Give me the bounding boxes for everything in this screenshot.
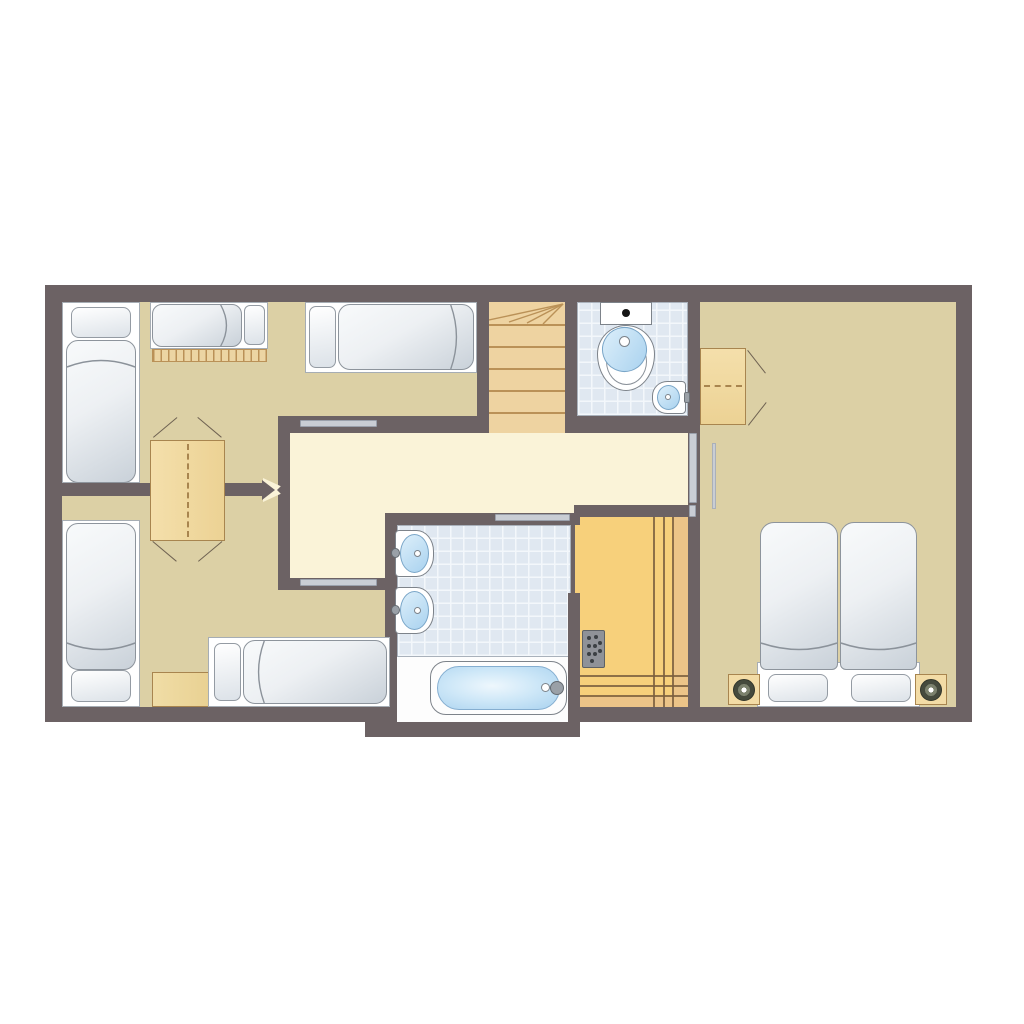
double-bed-mattress-right <box>840 522 917 670</box>
toilet-button <box>622 309 630 317</box>
bed-mattress <box>66 523 136 670</box>
bathtub-faucet <box>550 681 564 695</box>
sauna-bench-line <box>663 517 665 707</box>
wall-outer-top <box>45 285 972 302</box>
wardrobe-divider-line <box>187 444 189 537</box>
wall-bathroom-bump <box>365 722 580 737</box>
staircase <box>489 302 565 433</box>
bunk-bed-ladder <box>152 349 267 362</box>
sauna-bench-line <box>575 695 688 697</box>
wall-stairs-right <box>565 285 577 433</box>
bedside-lamp <box>920 679 942 701</box>
nightstand <box>152 672 209 707</box>
wardrobe-shared <box>150 440 225 541</box>
nightstand-left <box>728 674 760 705</box>
bunk-bed-mattress <box>152 304 242 347</box>
door-bedroom-top-left <box>300 420 377 427</box>
nightstand-right <box>915 674 947 705</box>
heater-stone <box>587 636 591 640</box>
bathroom-sink-drain <box>414 550 421 557</box>
toilet-flush-dot <box>619 336 630 347</box>
heater-stone <box>598 641 602 645</box>
sauna-bench-right <box>672 517 688 707</box>
door-bedroom-right <box>689 433 697 503</box>
wall-outer-right <box>956 285 972 722</box>
wall-bathroom-sauna <box>568 593 580 722</box>
bathroom-sink-faucet <box>391 605 400 615</box>
corner-sink-faucet <box>684 392 690 403</box>
heater-stone <box>598 649 602 653</box>
double-bed-mattress-left <box>760 522 838 670</box>
wall-outer-bottom-left <box>45 707 385 722</box>
wall-wc-bottom <box>565 416 700 433</box>
bunk-bed-pillow <box>244 305 265 345</box>
wardrobe-divider-line <box>704 385 742 387</box>
wall-outer-left <box>45 285 62 722</box>
wardrobe-right-bedroom <box>700 348 746 425</box>
sauna-bench-line <box>575 685 688 687</box>
heater-stone <box>587 652 591 656</box>
door-sauna <box>689 505 696 517</box>
bed-mattress <box>243 640 387 704</box>
heater-stone <box>593 644 597 648</box>
bed-pillow <box>71 307 131 338</box>
sauna-bench-line <box>575 675 688 677</box>
bed-pillow <box>851 674 911 702</box>
wall-sauna-top <box>574 505 700 517</box>
sauna-bench-line <box>672 517 674 707</box>
floor-plan <box>0 0 1024 1024</box>
bed-mattress <box>338 304 474 370</box>
bathroom-sink-faucet <box>391 548 400 558</box>
bedside-lamp <box>733 679 755 701</box>
bed-mattress <box>66 340 136 483</box>
bed-pillow <box>71 670 131 702</box>
heater-stone <box>587 644 591 648</box>
bathtub-drain <box>541 683 550 692</box>
bathroom-sink-drain <box>414 607 421 614</box>
bed-pillow <box>768 674 828 702</box>
door-bedroom-bottom-left <box>300 579 377 586</box>
corner-sink-drain <box>665 394 671 400</box>
wall-hallway-left <box>278 416 290 590</box>
bed-pillow <box>309 306 336 368</box>
door-bathroom <box>495 514 570 521</box>
heater-stone <box>594 635 598 639</box>
heater-stone <box>590 659 594 663</box>
partition-bathroom-sauna-glass <box>571 517 575 593</box>
sauna-heater <box>582 630 605 668</box>
wall-outer-bottom-right <box>580 707 972 722</box>
bed-pillow <box>214 643 241 701</box>
sauna-bench-line <box>653 517 655 707</box>
door-leaf-bedroom-right <box>712 443 716 509</box>
heater-stone <box>593 652 597 656</box>
wall-stairs-left <box>477 285 489 433</box>
